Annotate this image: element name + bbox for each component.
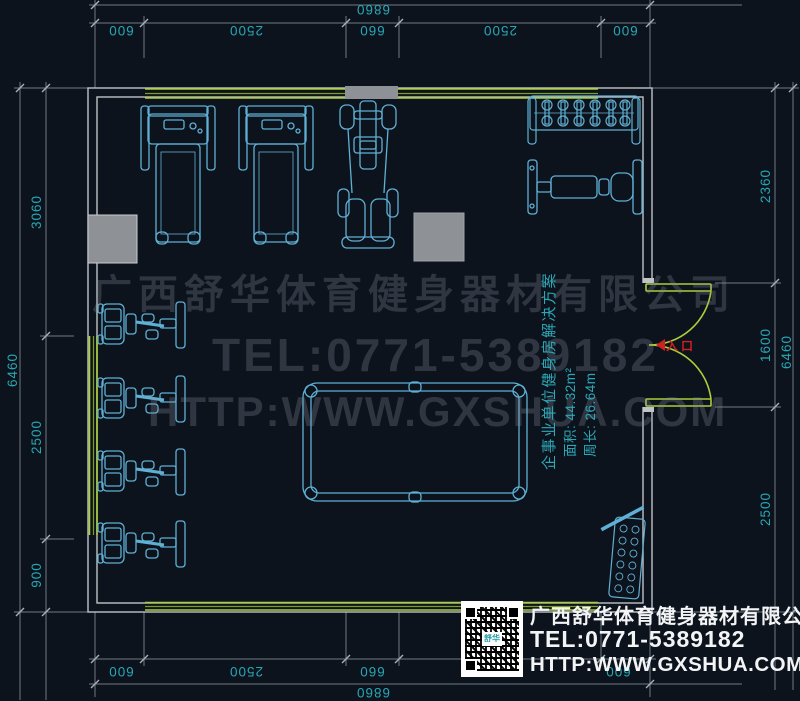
dim-top-seg2: 2500 [229, 23, 263, 38]
qr-finder-icon [464, 606, 477, 619]
dim-top-seg5: 600 [612, 23, 638, 38]
qr-finder-icon [507, 606, 520, 619]
qr-center-logo: 舒华 [482, 632, 502, 646]
contact-company: 广西舒华体育健身器材有限公司 [530, 600, 800, 629]
project-title: 企事业单位健身房解决方案 [538, 266, 561, 470]
dim-top-seg1: 600 [108, 23, 134, 38]
dim-bottom-seg1: 600 [108, 664, 134, 679]
project-perimeter: 周长: 26.64m [581, 266, 601, 470]
dumbbell-rack [528, 96, 640, 144]
strength-machine-3 [98, 449, 185, 495]
interior-gray-block [414, 213, 464, 261]
multi-station-gym [338, 101, 398, 248]
dim-left-overall: 6460 [5, 353, 20, 387]
watermark-company: 广西舒华体育健身器材有限公司 [92, 262, 736, 320]
dim-top-overall: 6860 [356, 2, 390, 17]
contact-tel: TEL:0771-5389182 [530, 626, 745, 653]
dim-right-seg1: 2360 [758, 169, 773, 203]
treadmill-2 [239, 106, 313, 244]
qr-finder-icon [464, 659, 477, 672]
dim-left-seg2: 2500 [29, 420, 44, 454]
qr-code: 舒华 [461, 601, 523, 677]
project-area: 面积: 44.32m² [561, 266, 581, 470]
dim-bottom-seg3: 660 [359, 664, 385, 679]
dim-right-seg3: 2500 [758, 492, 773, 526]
wall-gray-segment [345, 86, 398, 99]
weight-bench [528, 160, 642, 214]
dim-left-seg3: 900 [29, 562, 44, 588]
dim-left-seg1: 3060 [29, 195, 44, 229]
dim-bottom-seg2: 2500 [229, 664, 263, 679]
dim-top-seg3: 660 [359, 23, 385, 38]
plate-rack [596, 504, 647, 599]
dim-bottom-overall: 6860 [356, 685, 390, 700]
watermark-url: HTTP:WWW.GXSHUA.COM [148, 388, 727, 436]
left-wall-gray-block [88, 215, 137, 263]
dim-right-seg2: 1600 [758, 328, 773, 362]
contact-url: HTTP:WWW.GXSHUA.COM [530, 653, 800, 677]
entrance-label: 入口 [666, 339, 696, 353]
project-info-vertical: 企事业单位健身房解决方案 面积: 44.32m² 周长: 26.64m [536, 266, 614, 476]
dim-top-seg4: 2500 [483, 23, 517, 38]
treadmill-1 [141, 106, 215, 244]
strength-machine-4 [98, 521, 185, 567]
cad-floor-plan-screenshot: 6860 600 2500 660 2500 600 600 2500 660 … [0, 0, 800, 701]
dim-right-overall: 6460 [779, 335, 794, 369]
